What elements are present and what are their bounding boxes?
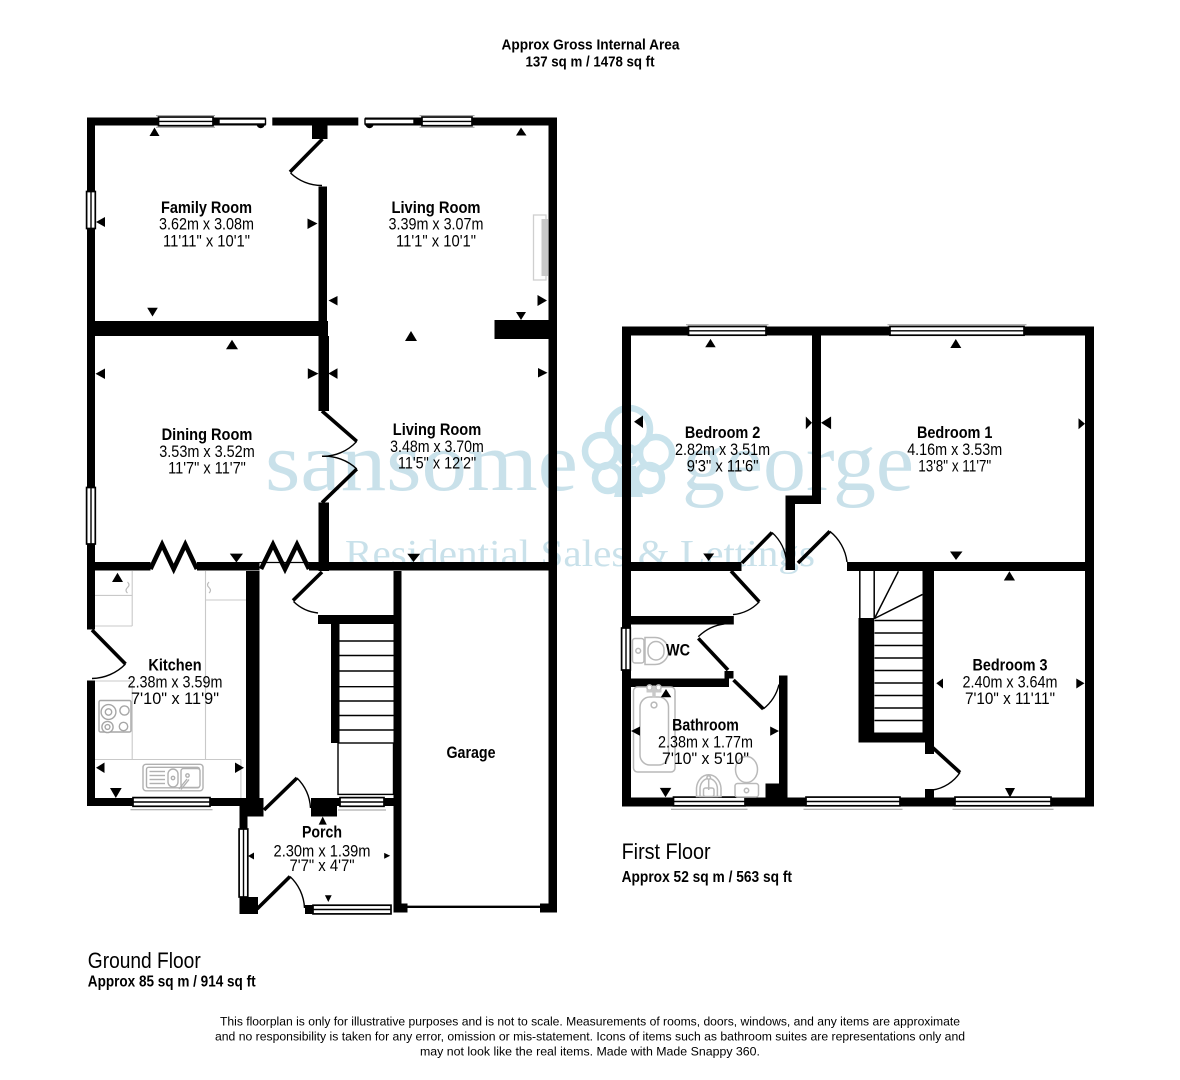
svg-text:Kitchen: Kitchen: [148, 657, 201, 675]
svg-text:3.62m x 3.08m: 3.62m x 3.08m: [159, 216, 254, 234]
svg-text:Bedroom 3: Bedroom 3: [973, 657, 1048, 675]
svg-text:Approx Gross Internal Area: Approx Gross Internal Area: [502, 37, 680, 54]
svg-text:11'5" x 12'2": 11'5" x 12'2": [398, 455, 476, 473]
svg-text:7'10" x 11'9": 7'10" x 11'9": [131, 690, 219, 708]
svg-text:2.82m x 3.51m: 2.82m x 3.51m: [675, 441, 770, 459]
svg-text:Living Room: Living Room: [393, 421, 481, 439]
svg-text:3.48m x 3.70m: 3.48m x 3.70m: [390, 438, 484, 456]
svg-text:7'10" x 11'11": 7'10" x 11'11": [965, 690, 1055, 708]
svg-text:3.53m x 3.52m: 3.53m x 3.52m: [159, 443, 255, 461]
svg-text:2.40m x 3.64m: 2.40m x 3.64m: [963, 673, 1058, 691]
svg-text:Porch: Porch: [302, 824, 342, 842]
svg-text:Approx 85 sq m / 914 sq ft: Approx 85 sq m / 914 sq ft: [88, 974, 256, 991]
svg-text:13'8" x 11'7": 13'8" x 11'7": [918, 458, 991, 476]
svg-text:This floorplan is only for ill: This floorplan is only for illustrative …: [220, 1015, 960, 1029]
svg-text:Living Room: Living Room: [392, 199, 481, 217]
svg-text:137 sq m / 1478 sq ft: 137 sq m / 1478 sq ft: [526, 54, 655, 71]
svg-text:7'7" x 4'7": 7'7" x 4'7": [290, 857, 355, 875]
svg-text:First Floor: First Floor: [622, 839, 711, 864]
svg-text:7'10" x 5'10": 7'10" x 5'10": [662, 750, 749, 768]
svg-text:4.16m x 3.53m: 4.16m x 3.53m: [907, 441, 1002, 459]
svg-text:Ground Floor: Ground Floor: [88, 948, 201, 973]
svg-text:Bedroom 2: Bedroom 2: [685, 424, 761, 442]
svg-text:11'7" x 11'7": 11'7" x 11'7": [168, 460, 246, 478]
svg-text:2.38m x 1.77m: 2.38m x 1.77m: [658, 733, 753, 751]
svg-text:11'11" x 10'1": 11'11" x 10'1": [163, 232, 250, 250]
svg-text:3.39m x 3.07m: 3.39m x 3.07m: [389, 216, 484, 234]
svg-text:2.38m x 3.59m: 2.38m x 3.59m: [128, 673, 223, 691]
svg-text:Bathroom: Bathroom: [672, 717, 739, 735]
svg-text:Bedroom 1: Bedroom 1: [917, 424, 993, 442]
svg-text:Family Room: Family Room: [161, 199, 252, 217]
svg-text:9'3" x 11'6": 9'3" x 11'6": [687, 458, 759, 476]
svg-text:Garage: Garage: [447, 744, 496, 762]
svg-text:Dining Room: Dining Room: [162, 426, 253, 444]
svg-text:and no responsibility is taken: and no responsibility is taken for any e…: [215, 1030, 965, 1044]
svg-text:may not look like the real ite: may not look like the real items. Made w…: [420, 1045, 760, 1059]
svg-text:WC: WC: [666, 642, 690, 660]
svg-text:11'1" x 10'1": 11'1" x 10'1": [396, 232, 476, 250]
svg-text:Approx 52 sq m / 563 sq ft: Approx 52 sq m / 563 sq ft: [622, 869, 793, 886]
